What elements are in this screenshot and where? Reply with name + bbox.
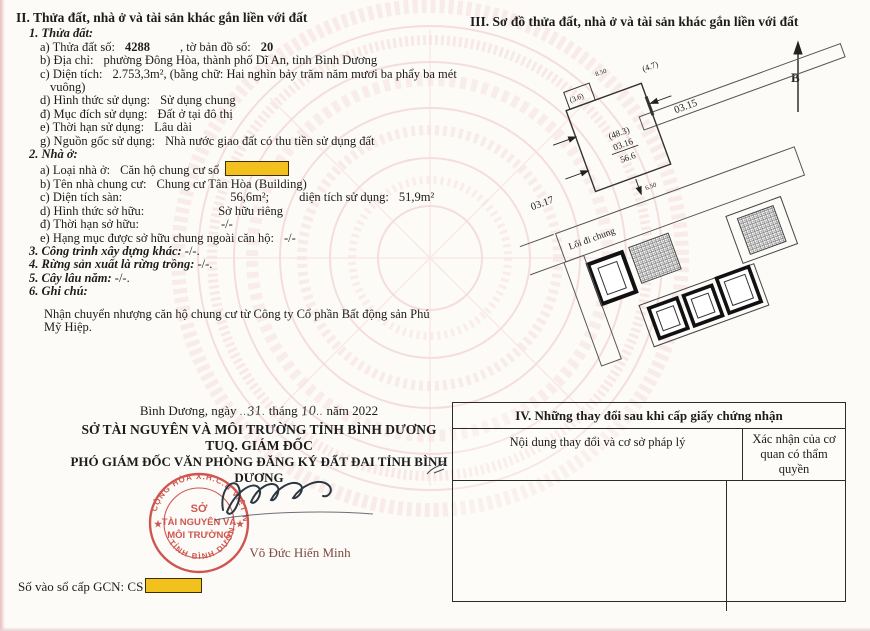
map-sheet-number: 20: [261, 40, 274, 54]
section-iv-headers: Nội dung thay đổi và cơ sở pháp lý Xác n…: [453, 429, 845, 481]
road-strip: [639, 44, 845, 130]
handwritten-day: 31: [246, 403, 262, 418]
use-purpose-row: đ) Mục đích sử dụng:Đất ở tại đô thị: [40, 108, 466, 121]
land-certificate-page: II. Thửa đất, nhà ở và tài sản khác gắn …: [0, 0, 870, 631]
handwritten-month: 10: [300, 403, 316, 418]
org-name: SỞ TÀI NGUYÊN VÀ MÔI TRƯỜNG TỈNH BÌNH DƯ…: [58, 422, 460, 438]
parcel-heading: 1. Thửa đất:: [29, 27, 466, 40]
parcel-diagram: B (3.6) 8.50 (4.7) 03.15 03.17 (48.3) 03…: [468, 30, 866, 390]
area-row-cont: vuông): [50, 81, 466, 94]
parcel-number-row: a) Thửa đất số:4288, tờ bản đồ số:20: [40, 41, 466, 54]
shared-items-row: e) Hạng mục được sở hữu chung ngoài căn …: [40, 232, 466, 245]
gcn-registry-line: Số vào sổ cấp GCN: CS: [18, 578, 202, 595]
use-origin-row: g) Nguồn gốc sử dụng:Nhà nước giao đất c…: [40, 135, 466, 148]
small-box-label: (3.6): [568, 91, 585, 105]
neighbor-top-label: (4.7): [641, 59, 660, 74]
confirmation-cell-empty: [727, 481, 845, 611]
notes-text: Nhận chuyển nhượng căn hộ chung cư từ Cô…: [44, 308, 444, 335]
forest-heading: 4. Rừng sản xuất là rừng trồng: -/-.: [29, 258, 466, 271]
dim-top: 8.50: [594, 68, 607, 78]
north-arrow-icon: B: [791, 42, 802, 112]
walkway-label: Lối đi chung: [567, 226, 617, 253]
area-row: c) Diện tích:2.753,3m², (bằng chữ: Hai n…: [40, 68, 466, 81]
other-构-heading: 3. Công trình xây dựng khác: -/-.: [29, 245, 466, 258]
date-line: Bình Dương, ngày ..31. tháng 10.. năm 20…: [58, 403, 460, 419]
svg-text:B: B: [791, 70, 800, 85]
section-ii-title: II. Thửa đất, nhà ở và tài sản khác gắn …: [16, 11, 466, 24]
perennial-heading: 5. Cây lâu năm: -/-.: [29, 272, 466, 285]
building-name-row: b) Tên nhà chung cư:Chung cư Tân Hòa (Bu…: [40, 178, 466, 191]
signer-title-1: TUQ. GIÁM ĐỐC: [58, 438, 460, 454]
scan-edge: [0, 0, 5, 631]
section-iv-body: [453, 481, 845, 611]
neighbor-left-label: 03.17: [529, 195, 555, 213]
changes-cell-empty: [453, 481, 727, 611]
service-block-hatched: [629, 233, 681, 283]
use-term-row: e) Thời hạn sử dụng:Lâu dài: [40, 121, 466, 134]
col-header-confirmation: Xác nhận của cơ quan có thẩm quyền: [743, 429, 845, 480]
col-header-changes: Nội dung thay đổi và cơ sở pháp lý: [453, 429, 743, 480]
svg-text:56.6: 56.6: [619, 150, 638, 165]
house-heading: 2. Nhà ở:: [29, 148, 466, 161]
section-iv-table: IV. Những thay đổi sau khi cấp giấy chứn…: [452, 402, 846, 602]
svg-text:★: ★: [154, 519, 163, 529]
redaction-box-gcn-number: [145, 578, 202, 593]
redaction-box-apartment-number: [225, 161, 289, 176]
service-block-hatched-2: [726, 197, 798, 264]
section-iv-title: IV. Những thay đổi sau khi cấp giấy chứn…: [453, 403, 845, 429]
pen-mark: [424, 460, 450, 478]
section-iii-title: III. Sơ đồ thửa đất, nhà ở và tài sản kh…: [470, 14, 798, 30]
parcel-number: 4288: [125, 40, 150, 54]
section-ii: II. Thửa đất, nhà ở và tài sản khác gắn …: [16, 11, 466, 334]
ownership-term-row: đ) Thời hạn sở hữu:-/-: [40, 218, 466, 231]
use-form-row: d) Hình thức sử dụng:Sử dụng chung: [40, 94, 466, 107]
address-row: b) Địa chỉ:phường Đông Hòa, thành phố Dĩ…: [40, 54, 466, 67]
floor-area-row: c) Diện tích sàn:56,6m²;diện tích sử dụn…: [40, 191, 466, 204]
scan-edge-bottom: [0, 627, 870, 631]
house-type-row: a) Loại nhà ở:Căn hộ chung cư số: [40, 161, 466, 177]
unit-labels: (48.3) 03.16 56.6: [604, 123, 643, 166]
handwritten-signature: [205, 458, 405, 538]
neighbor-right-label: 03.15: [673, 98, 699, 116]
ownership-form-row: d) Hình thức sở hữu:Sở hữu riêng: [40, 205, 466, 218]
signer-name: Võ Đức Hiến Minh: [210, 545, 390, 561]
notes-heading: 6. Ghi chú:: [29, 285, 466, 298]
stair-core: [588, 252, 636, 304]
dim-bottom: 6.50: [644, 182, 657, 192]
